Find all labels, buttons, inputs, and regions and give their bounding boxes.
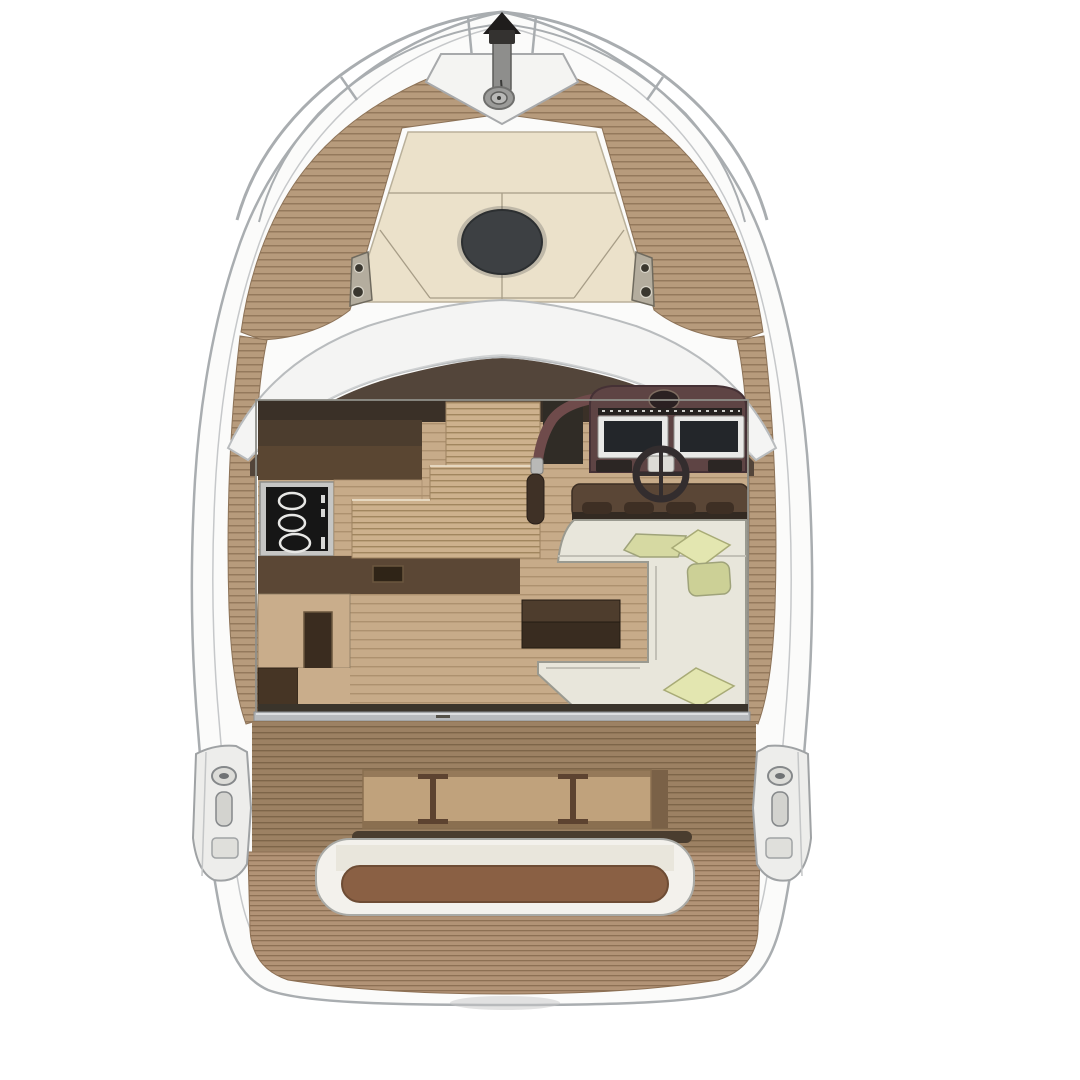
door-sill <box>258 704 748 712</box>
foredeck-cleat-left <box>350 252 372 306</box>
transom-seat <box>316 831 694 915</box>
track-stop <box>436 715 450 718</box>
mooring-pod-right <box>753 746 811 881</box>
yacht-floor-plan <box>0 0 1080 1080</box>
switch-panel-left <box>596 460 632 472</box>
switch-panel-right <box>708 460 742 472</box>
galley-cabinet-front <box>258 446 422 480</box>
boat-plan-canvas <box>0 0 1080 1080</box>
ground-shadow <box>450 996 560 1010</box>
bow-hatch <box>462 210 542 274</box>
windlass-icon <box>484 87 514 109</box>
seat-cushion <box>342 866 668 902</box>
pillow <box>687 562 731 597</box>
galley-cabinet <box>258 420 422 446</box>
cockpit-table <box>363 770 668 828</box>
sink <box>304 612 332 670</box>
cabin-interior <box>254 386 750 721</box>
foredeck-cleat-right <box>632 252 654 306</box>
cooktop <box>260 482 334 556</box>
drawer-handle <box>373 566 403 582</box>
coffee-table <box>522 600 620 648</box>
steering-wheel-icon <box>636 449 686 499</box>
